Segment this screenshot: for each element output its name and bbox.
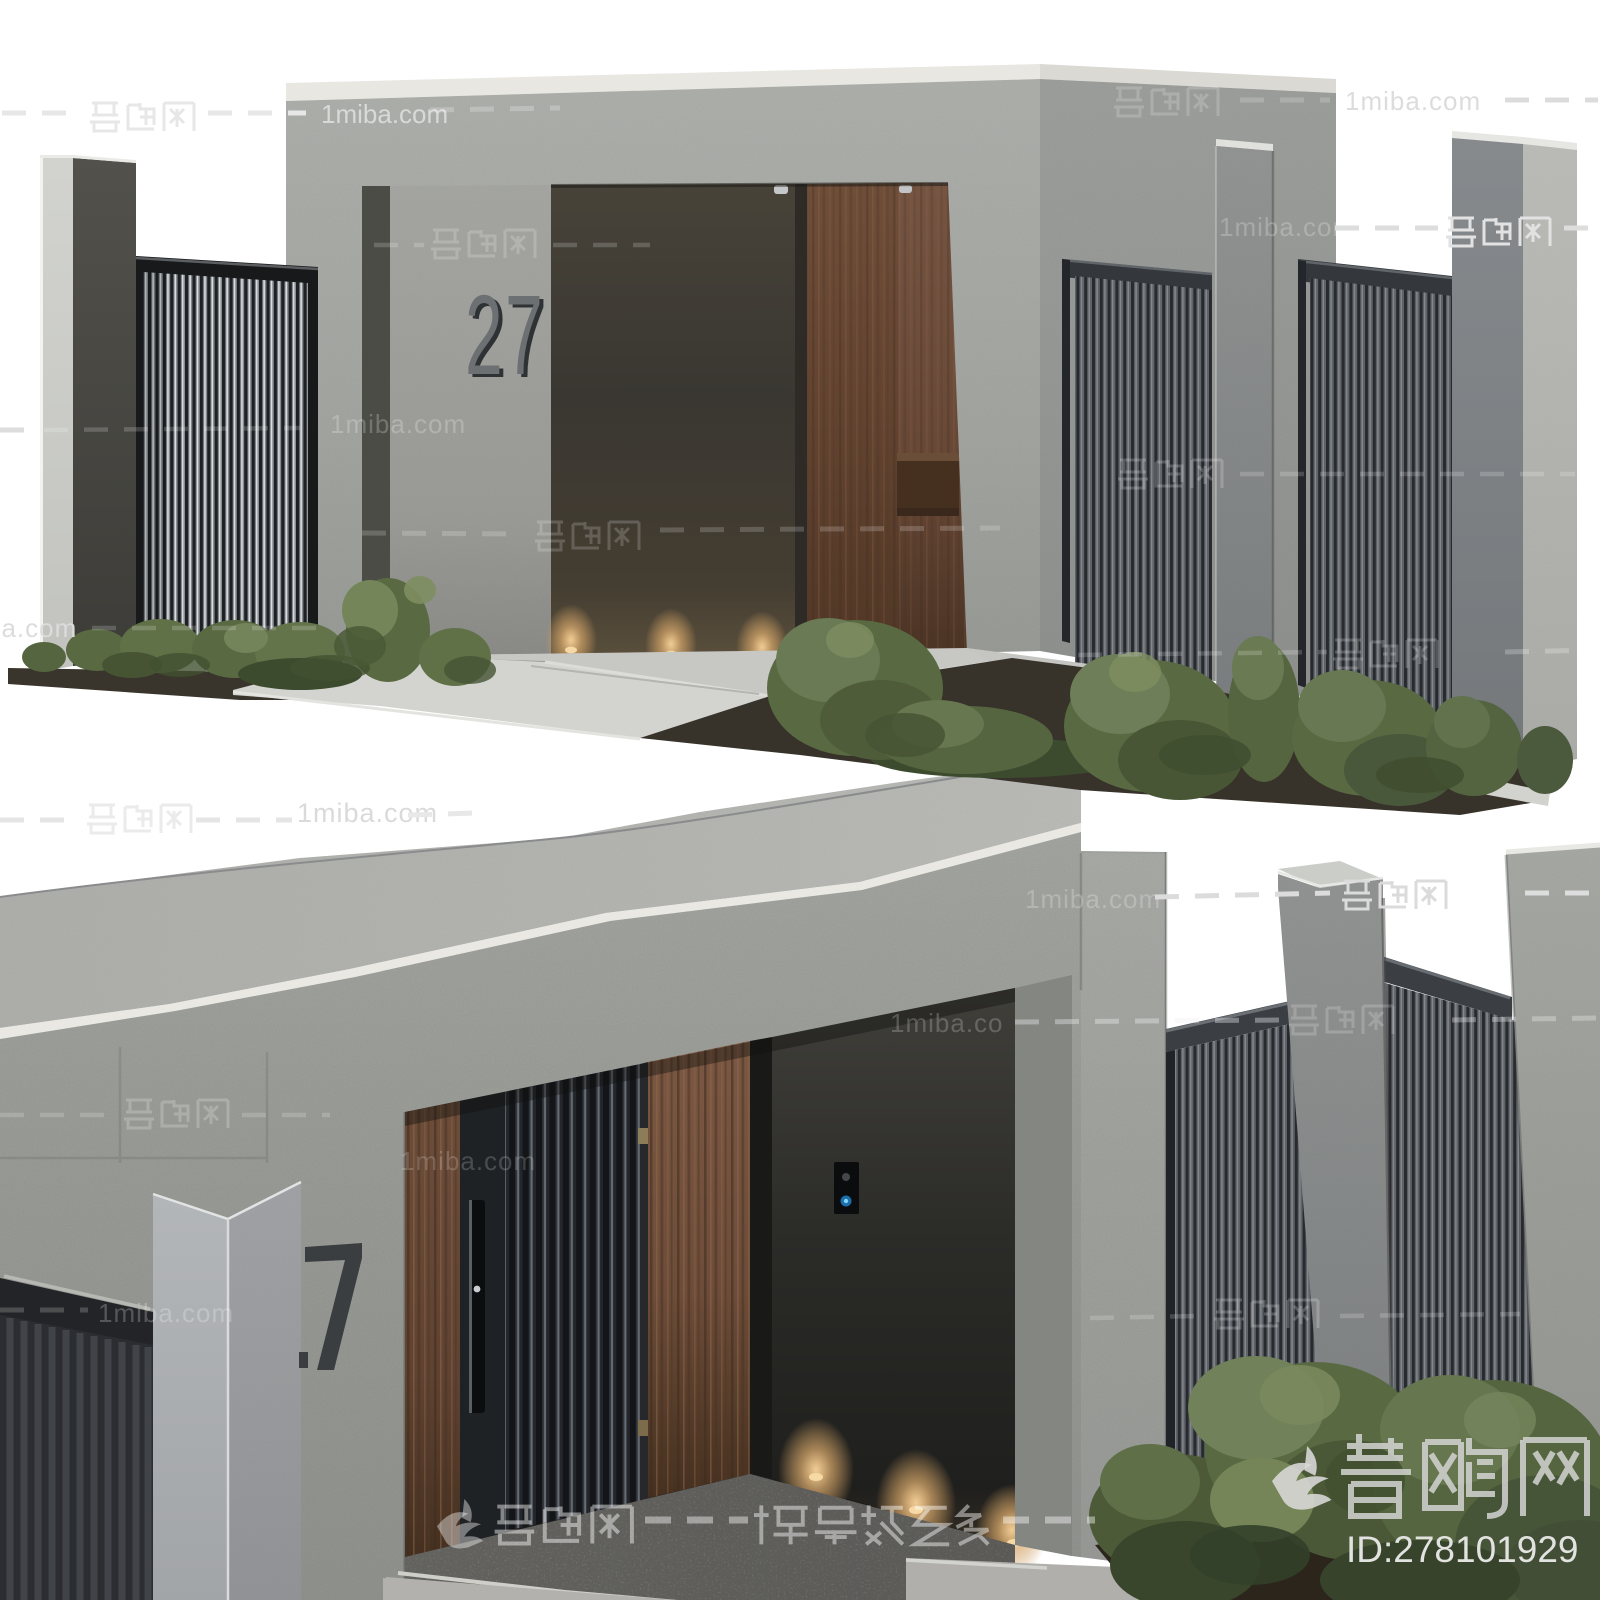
svg-text:27: 27: [465, 272, 545, 398]
svg-text:1miba.com: 1miba.com: [1025, 884, 1161, 914]
svg-text:1miba.com: 1miba.com: [1219, 212, 1355, 242]
svg-text:1miba.com: 1miba.com: [330, 409, 466, 439]
svg-text:1miba.com: 1miba.com: [321, 99, 448, 129]
svg-text:ba.com: ba.com: [0, 613, 77, 643]
svg-text:1miba.co: 1miba.co: [890, 1008, 1004, 1038]
svg-text:1miba.com: 1miba.com: [98, 1298, 234, 1328]
svg-text:1miba.com: 1miba.com: [1345, 86, 1481, 116]
svg-text:1miba.com: 1miba.com: [400, 1146, 536, 1176]
svg-text:ID:278101929: ID:278101929: [1346, 1529, 1578, 1570]
